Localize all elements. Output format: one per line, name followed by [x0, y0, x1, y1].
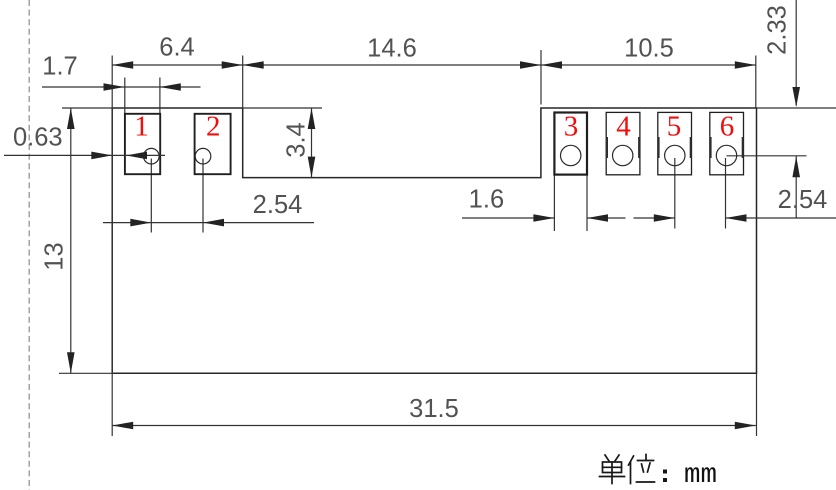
svg-text:31.5: 31.5 — [409, 395, 459, 423]
svg-text:2.54: 2.54 — [253, 191, 303, 219]
svg-text:5: 5 — [667, 111, 682, 143]
svg-text:3.4: 3.4 — [283, 122, 311, 157]
svg-text:1: 1 — [134, 111, 149, 143]
svg-text:6.4: 6.4 — [159, 34, 194, 62]
svg-text:14.6: 14.6 — [367, 35, 417, 63]
svg-text:2.54: 2.54 — [778, 186, 828, 214]
svg-text:6: 6 — [720, 111, 735, 143]
svg-text:mm: mm — [684, 460, 717, 490]
svg-text:2.33: 2.33 — [764, 5, 792, 55]
svg-text:13: 13 — [41, 242, 69, 270]
svg-text:2: 2 — [206, 111, 221, 143]
svg-text:1.6: 1.6 — [469, 186, 504, 214]
svg-text:10.5: 10.5 — [624, 35, 674, 63]
svg-text:0.63: 0.63 — [13, 124, 63, 152]
svg-text:4: 4 — [616, 111, 631, 143]
svg-text:1.7: 1.7 — [42, 53, 77, 81]
svg-text:3: 3 — [564, 111, 579, 143]
